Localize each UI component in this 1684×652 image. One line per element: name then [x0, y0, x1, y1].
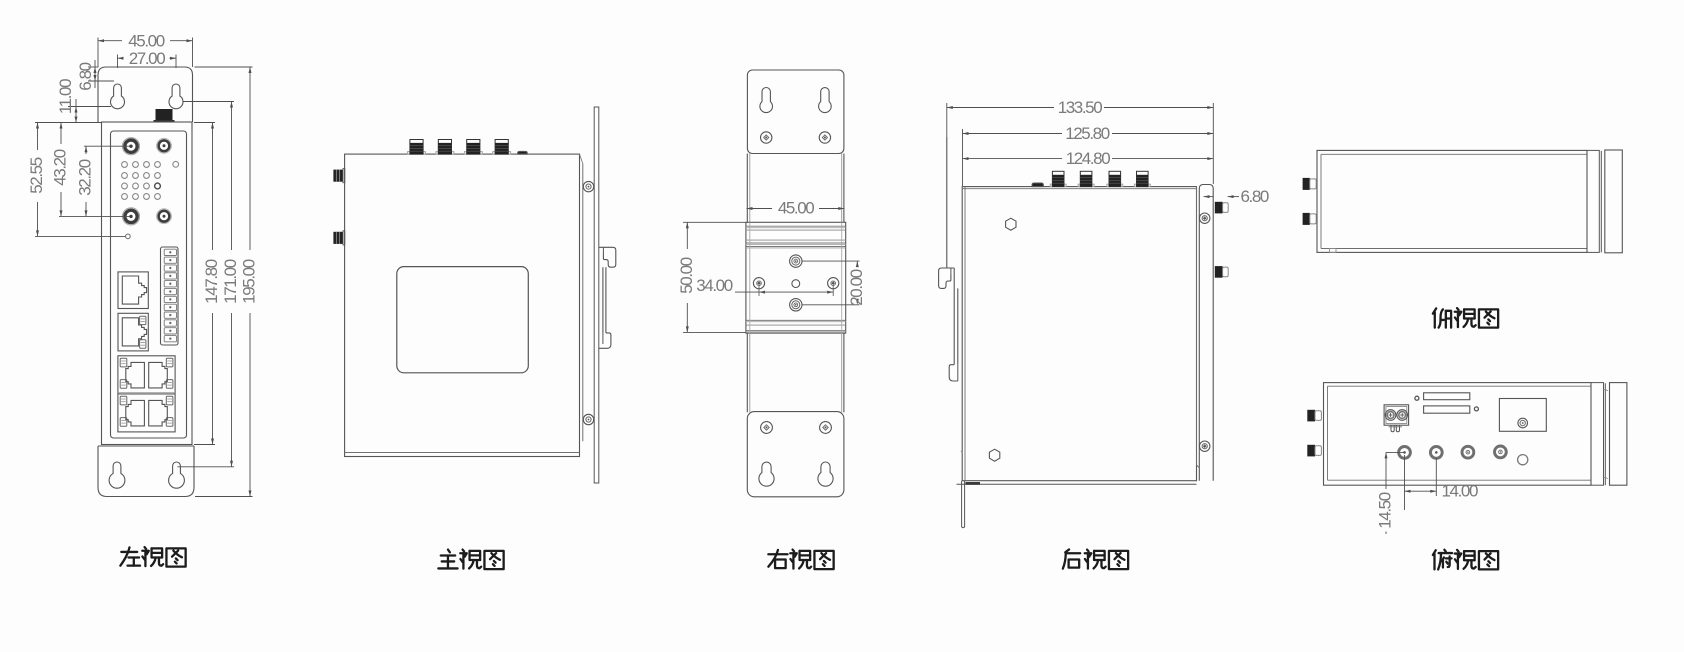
svg-text:14.00: 14.00	[1442, 482, 1478, 501]
svg-text:20.00: 20.00	[847, 269, 866, 305]
svg-text:11.00: 11.00	[56, 79, 75, 114]
svg-text:43.20: 43.20	[51, 149, 70, 185]
svg-text:133.50: 133.50	[1058, 98, 1103, 117]
svg-text:124.80: 124.80	[1066, 149, 1111, 168]
svg-text:171.00: 171.00	[221, 259, 240, 304]
svg-text:125.80: 125.80	[1065, 124, 1110, 143]
svg-text:6.80: 6.80	[76, 62, 95, 90]
svg-text:45.00: 45.00	[778, 199, 814, 218]
svg-text:27.00: 27.00	[129, 49, 165, 68]
svg-text:34.00: 34.00	[696, 276, 732, 295]
svg-text:32.20: 32.20	[76, 159, 95, 195]
svg-text:195.00: 195.00	[240, 259, 259, 304]
svg-text:45.00: 45.00	[128, 32, 164, 51]
svg-text:14.50: 14.50	[1376, 492, 1395, 528]
svg-text:50.00: 50.00	[677, 257, 696, 293]
svg-text:147.80: 147.80	[202, 259, 221, 304]
svg-text:52.55: 52.55	[27, 157, 46, 193]
svg-text:6.80: 6.80	[1241, 187, 1269, 206]
